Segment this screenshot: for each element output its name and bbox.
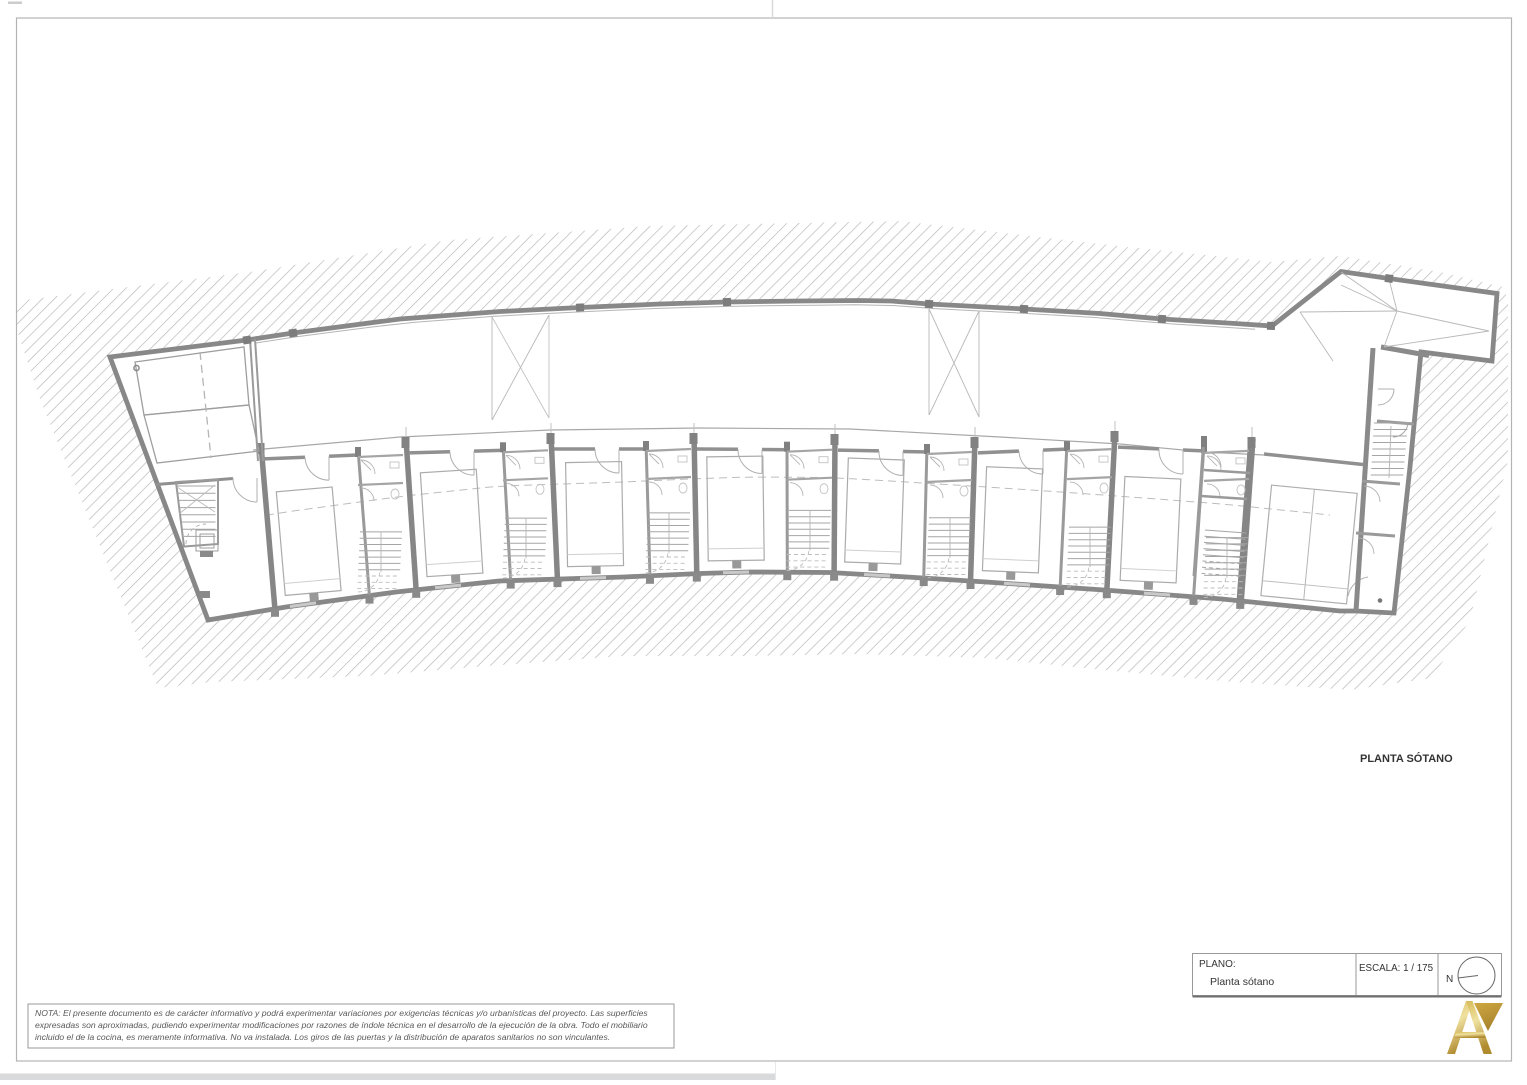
svg-text:PLANTA SÓTANO: PLANTA SÓTANO [1360, 752, 1453, 765]
svg-text:N: N [1446, 974, 1453, 985]
svg-text:ESCALA: 1 / 175: ESCALA: 1 / 175 [1359, 963, 1434, 974]
svg-text:incluido el de la cocina, es m: incluido el de la cocina, es meramente i… [35, 1032, 610, 1042]
svg-text:PLANO:: PLANO: [1199, 959, 1236, 970]
svg-text:NOTA: El presente documento es: NOTA: El presente documento es de caráct… [35, 1008, 648, 1018]
svg-text:Planta sótano: Planta sótano [1210, 976, 1274, 988]
svg-text:expresadas son aproximadas, pu: expresadas son aproximadas, pudiendo exp… [35, 1020, 648, 1030]
